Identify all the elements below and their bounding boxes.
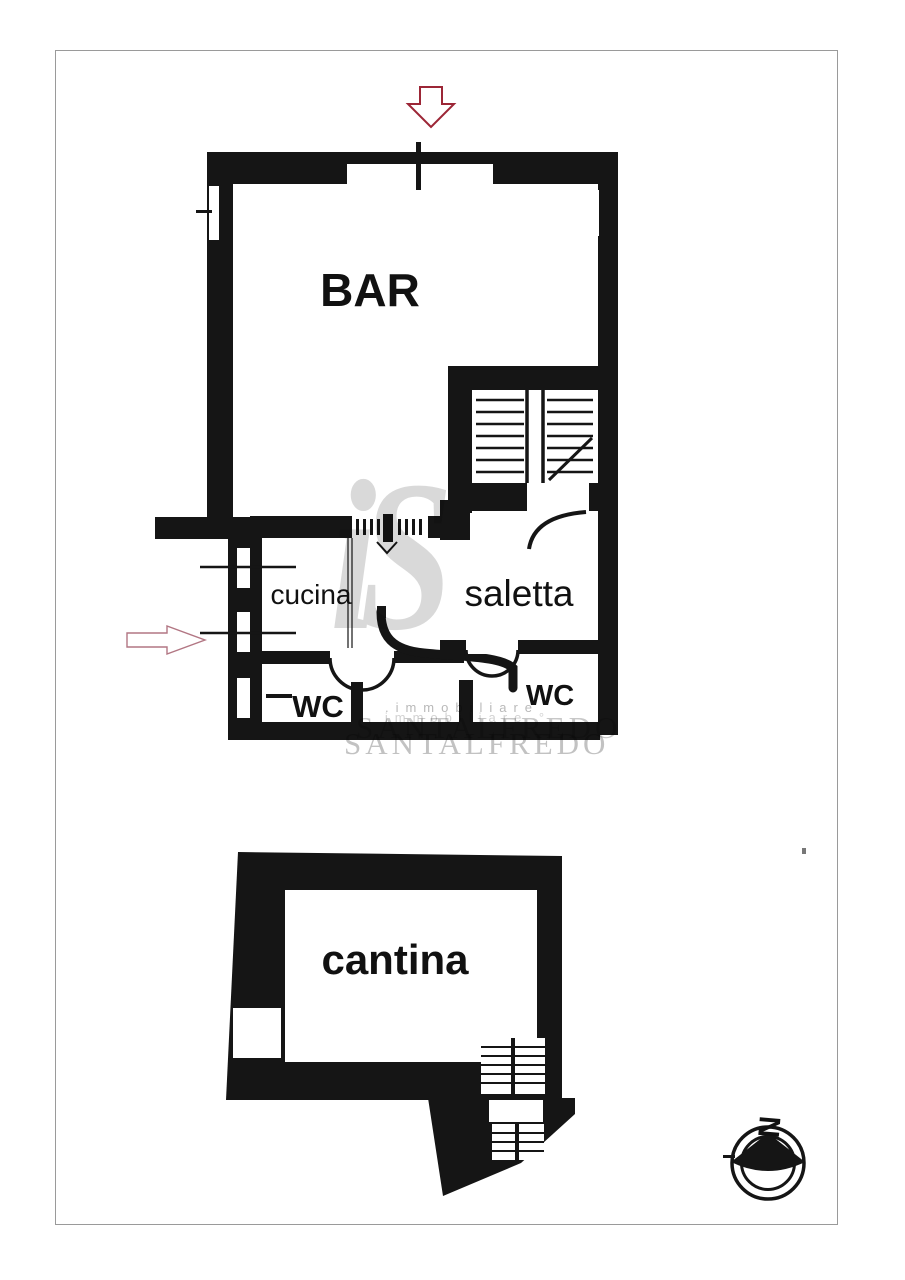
lower-floor-plan: cantina [226, 852, 575, 1196]
entrance-arrow-icon [408, 87, 454, 127]
room-label-wc-left: WC [292, 689, 344, 724]
door-arc [529, 512, 586, 549]
room-label-cucina: cucina [271, 579, 352, 610]
scan-speck [802, 848, 806, 854]
room-label-bar: BAR [320, 264, 420, 316]
window-hatches [352, 514, 428, 553]
left-wall-column [200, 517, 296, 740]
compass-rose: N [723, 1115, 805, 1199]
floor-plan-drawing: BAR cucina saletta WC WC [0, 0, 905, 1280]
room-label-wc-right: WC [526, 680, 574, 712]
room-label-cantina: cantina [321, 936, 469, 983]
room-label-saletta: saletta [464, 573, 573, 614]
upper-floor-plan: BAR cucina saletta WC WC [127, 87, 618, 740]
entrance-door-tick [416, 142, 421, 190]
scanned-floor-plan-page: BAR cucina saletta WC WC [0, 0, 905, 1280]
compass-north-label: N [751, 1115, 786, 1139]
wall-niche [233, 1008, 281, 1058]
stairs-icon [476, 390, 593, 483]
side-entrance-arrow-icon [127, 626, 205, 654]
stairwell [448, 366, 618, 549]
